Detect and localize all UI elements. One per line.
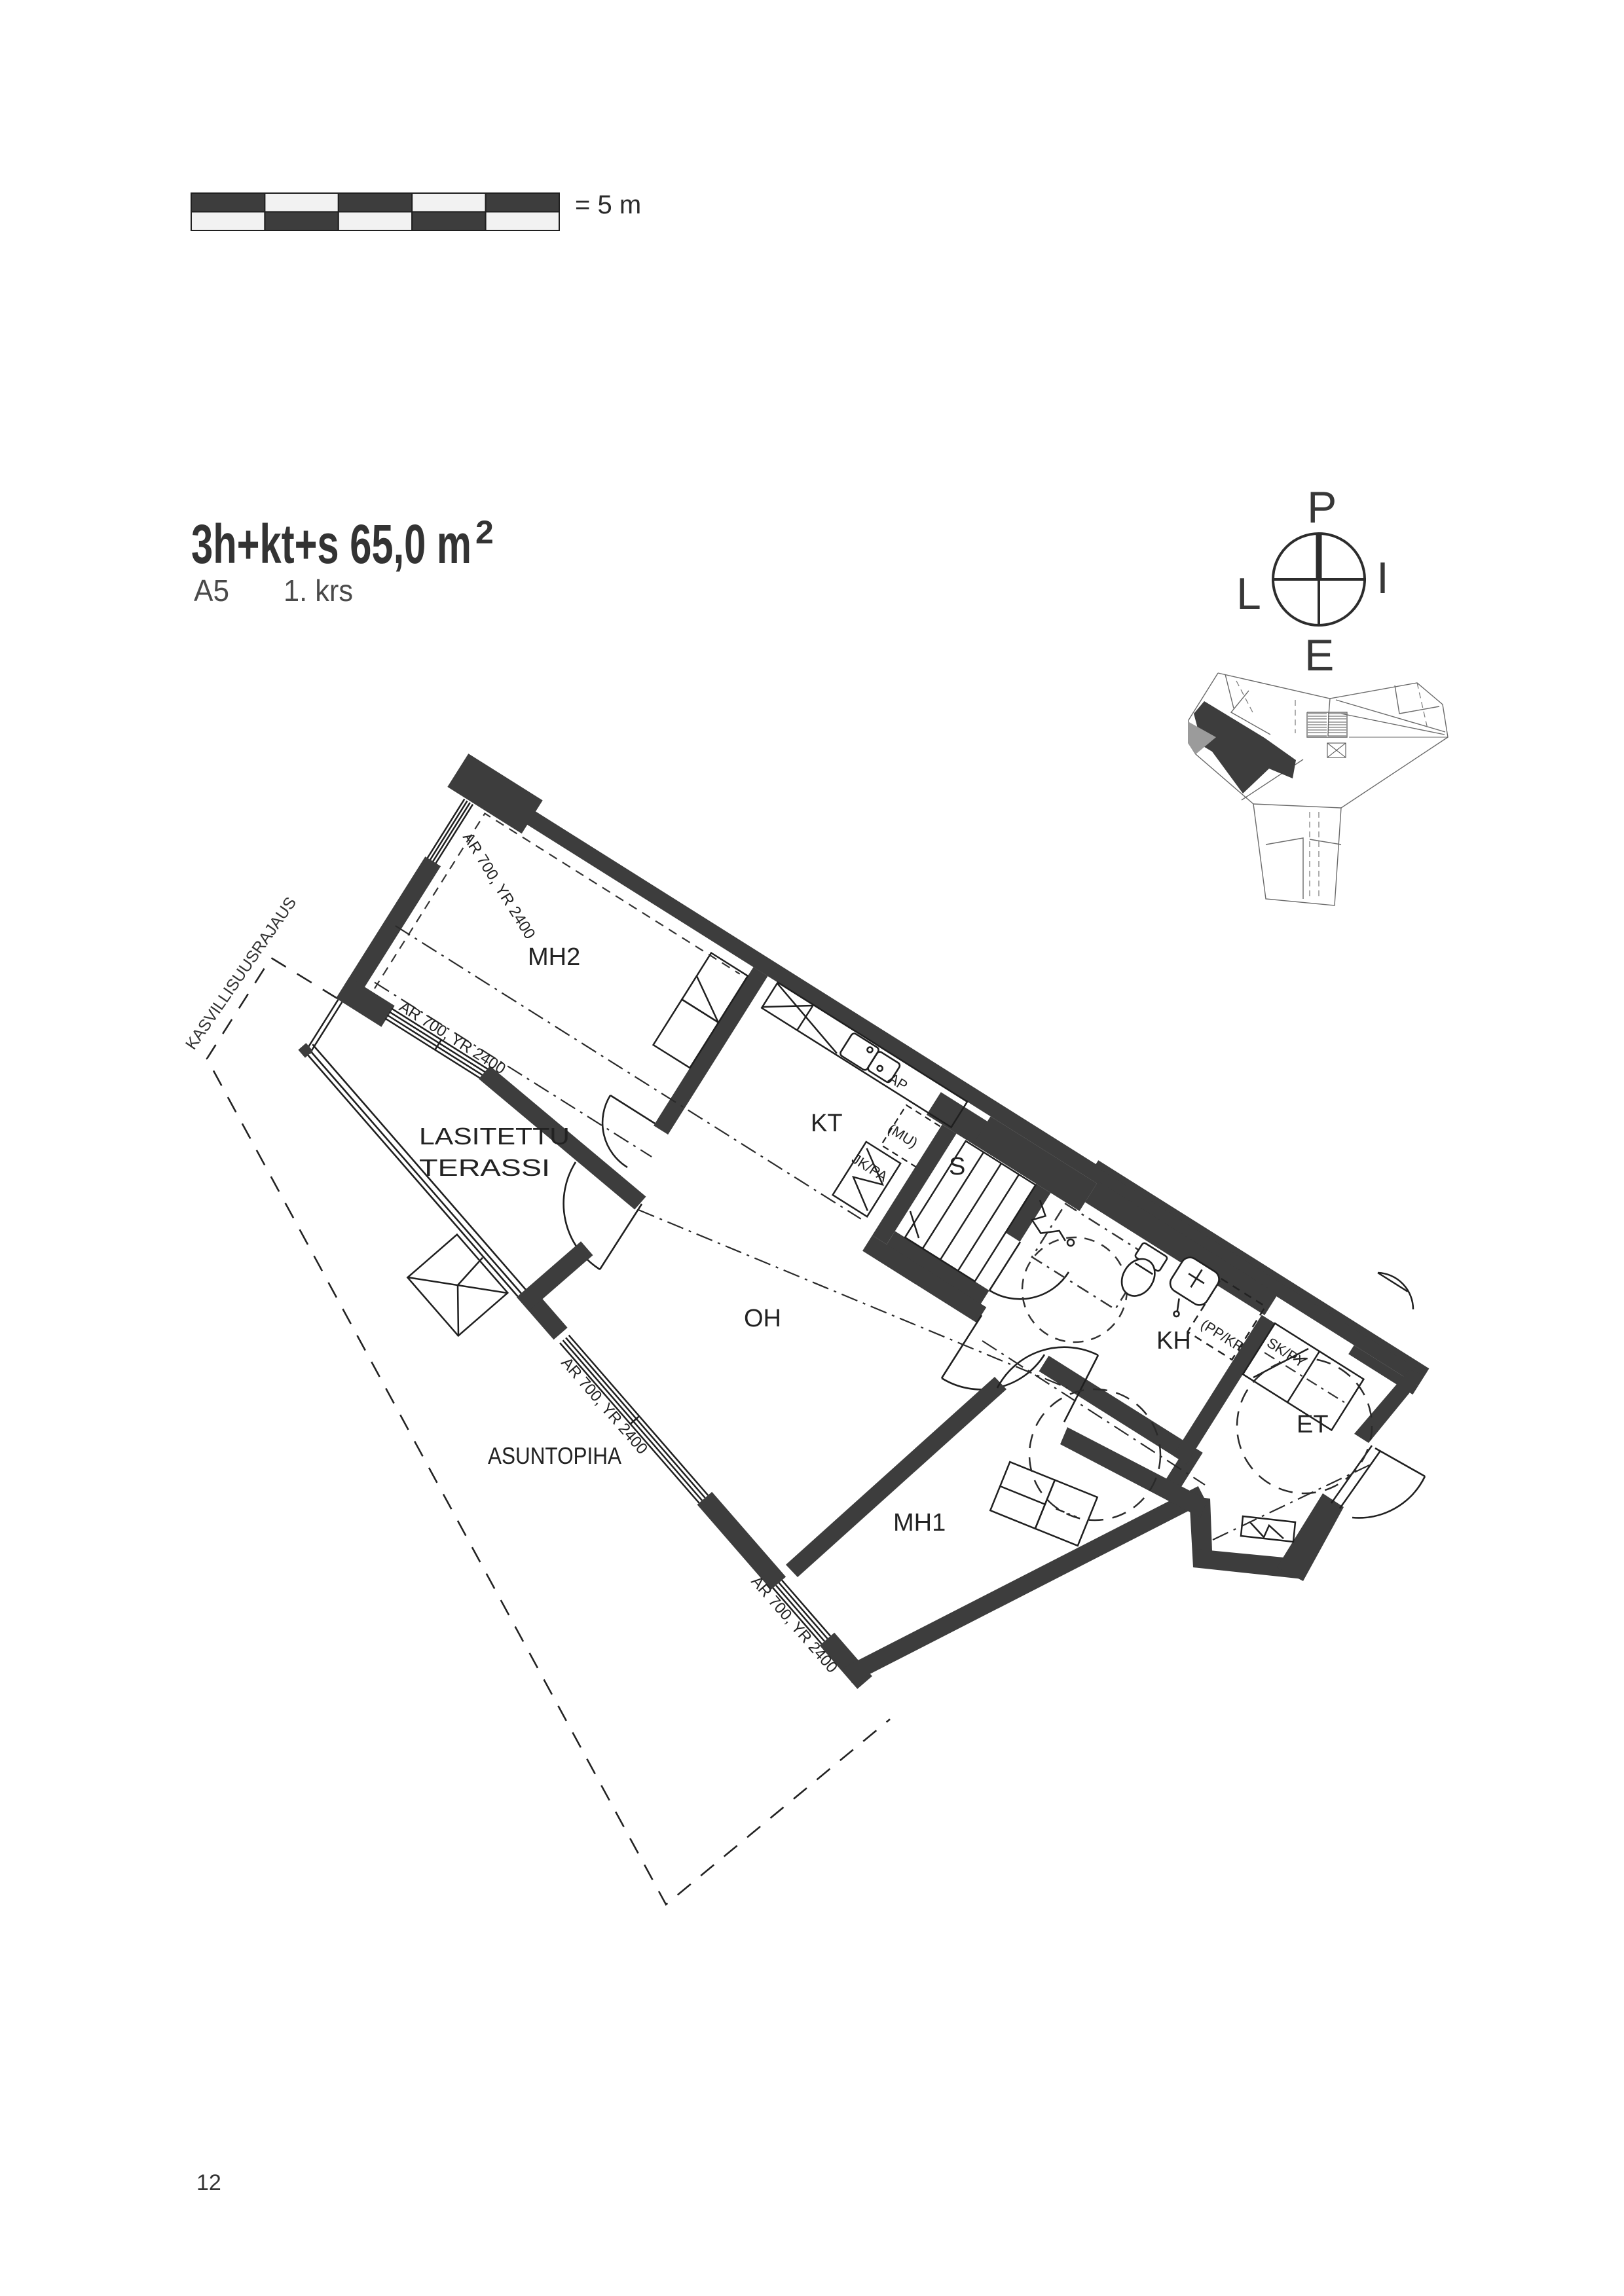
svg-text:2: 2 (475, 514, 494, 551)
svg-text:1. krs: 1. krs (284, 574, 353, 608)
svg-text:ET: ET (1297, 1411, 1329, 1438)
svg-text:P: P (1307, 483, 1337, 532)
svg-text:E: E (1304, 630, 1334, 680)
svg-text:A5: A5 (194, 574, 229, 608)
svg-text:12: 12 (196, 2170, 221, 2195)
svg-text:KH: KH (1156, 1327, 1191, 1355)
svg-text:= 5 m: = 5 m (575, 191, 641, 219)
svg-text:S: S (949, 1153, 965, 1180)
svg-text:L: L (1236, 569, 1261, 619)
svg-text:LASITETTU: LASITETTU (419, 1123, 570, 1150)
svg-text:MH1: MH1 (893, 1509, 946, 1537)
svg-text:TERASSI: TERASSI (419, 1154, 550, 1181)
svg-text:MH2: MH2 (528, 943, 580, 971)
svg-text:KT: KT (811, 1110, 843, 1137)
svg-text:OH: OH (744, 1305, 781, 1332)
svg-text:3h+kt+s 65,0 m: 3h+kt+s 65,0 m (191, 513, 471, 575)
svg-text:ASUNTOPIHA: ASUNTOPIHA (488, 1442, 621, 1469)
svg-text:I: I (1376, 553, 1389, 603)
